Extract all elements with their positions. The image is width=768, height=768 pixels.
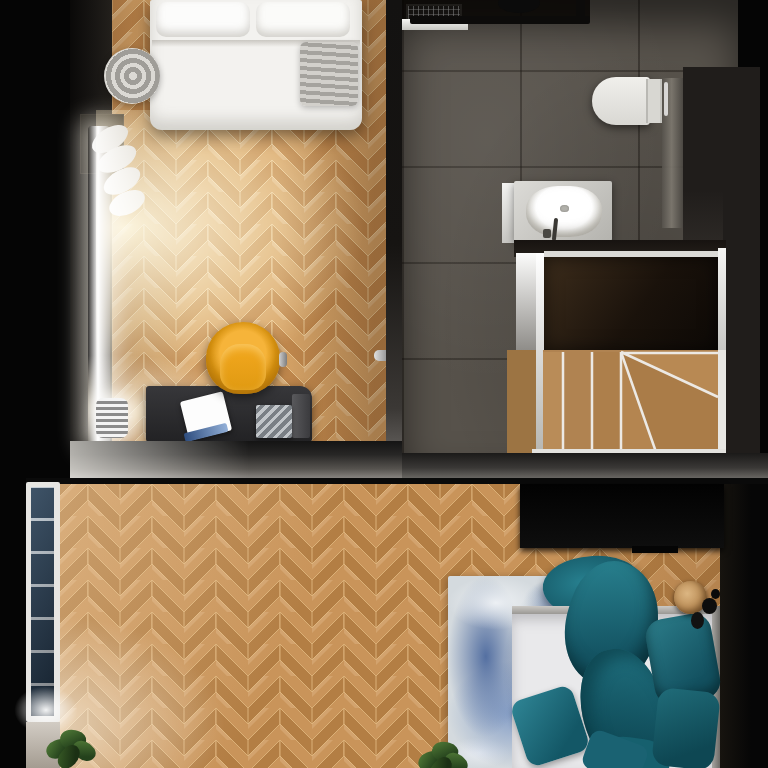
stair-stringer-top: [544, 251, 726, 257]
right-wall-bottom-room: [720, 484, 768, 768]
vase-icon: [702, 598, 717, 614]
radiator: [96, 398, 128, 438]
book-stack: [256, 405, 292, 438]
floorplan-render: [0, 0, 768, 768]
toilet-tank: [646, 79, 662, 123]
chair-seat: [220, 344, 266, 390]
vase-icon: [691, 612, 704, 629]
stair-landing: [544, 257, 718, 351]
soap-dish: [543, 229, 551, 238]
shower-screen-frame-end: [576, 0, 585, 24]
sink-drain: [560, 205, 569, 212]
plant: [418, 742, 472, 768]
toilet: [592, 77, 650, 125]
wardrobe: [520, 484, 724, 548]
teal-pillow-2: [651, 687, 721, 768]
blanket-rolled-end: [104, 48, 160, 104]
blanket-flat: [300, 42, 358, 106]
wardrobe-handle-notch: [632, 546, 678, 553]
winder-staircase: [507, 350, 726, 454]
pillow-right: [256, 2, 350, 37]
desk-side-panel: [292, 394, 310, 438]
pillow-left: [156, 2, 250, 37]
glass-highlight: [664, 82, 668, 116]
plant: [46, 730, 100, 768]
vase-icon: [711, 589, 720, 599]
shower-screen-frame: [410, 16, 590, 24]
window-glass-panes: [31, 487, 54, 716]
chair-armrest: [279, 352, 287, 367]
wall-between-room-and-bathroom: [386, 0, 402, 444]
